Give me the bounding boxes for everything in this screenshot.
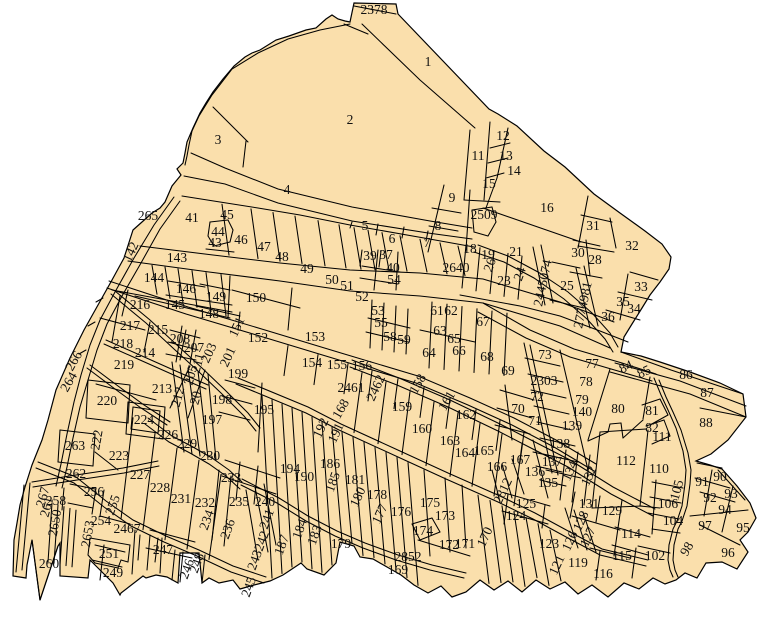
svg-text:39: 39 xyxy=(363,248,377,263)
svg-text:66: 66 xyxy=(452,343,466,358)
svg-text:235: 235 xyxy=(229,494,250,509)
svg-text:223: 223 xyxy=(109,448,130,463)
svg-text:152: 152 xyxy=(248,330,268,345)
svg-text:2640: 2640 xyxy=(443,260,470,275)
svg-text:262: 262 xyxy=(66,466,86,481)
svg-text:2303: 2303 xyxy=(531,373,558,388)
svg-text:199: 199 xyxy=(228,366,249,381)
svg-text:41: 41 xyxy=(185,210,199,225)
svg-text:169: 169 xyxy=(388,562,409,577)
svg-text:87: 87 xyxy=(700,385,714,400)
svg-text:61: 61 xyxy=(430,303,444,318)
svg-text:197: 197 xyxy=(202,412,223,427)
svg-text:92: 92 xyxy=(703,490,717,505)
svg-text:23: 23 xyxy=(497,273,511,288)
svg-text:59: 59 xyxy=(397,332,411,347)
svg-text:265: 265 xyxy=(138,208,159,223)
svg-text:71: 71 xyxy=(528,413,542,428)
svg-text:229: 229 xyxy=(177,436,198,451)
svg-text:195: 195 xyxy=(254,402,275,417)
svg-text:131: 131 xyxy=(579,496,599,511)
svg-text:249: 249 xyxy=(103,565,124,580)
svg-text:215: 215 xyxy=(148,322,169,337)
svg-text:93: 93 xyxy=(724,486,738,501)
svg-text:233: 233 xyxy=(221,470,242,485)
svg-text:217: 217 xyxy=(120,318,141,333)
svg-text:7: 7 xyxy=(424,235,431,250)
svg-text:240: 240 xyxy=(255,494,276,509)
svg-text:46: 46 xyxy=(234,232,248,247)
svg-text:104: 104 xyxy=(663,513,684,528)
svg-text:8: 8 xyxy=(435,218,442,233)
svg-text:214: 214 xyxy=(135,345,156,360)
svg-text:73: 73 xyxy=(538,347,552,362)
svg-text:88: 88 xyxy=(699,415,713,430)
svg-text:155: 155 xyxy=(327,357,348,372)
svg-text:2467: 2467 xyxy=(114,521,141,536)
svg-text:1: 1 xyxy=(425,54,432,69)
svg-text:230: 230 xyxy=(200,448,221,463)
svg-text:95: 95 xyxy=(736,520,750,535)
svg-text:162: 162 xyxy=(456,407,476,422)
svg-text:52: 52 xyxy=(355,289,369,304)
svg-text:116: 116 xyxy=(593,566,613,581)
svg-text:173: 173 xyxy=(435,508,456,523)
svg-text:251: 251 xyxy=(99,546,119,561)
svg-text:123: 123 xyxy=(539,536,560,551)
svg-text:70: 70 xyxy=(511,401,525,416)
svg-text:144: 144 xyxy=(144,270,165,285)
svg-text:218: 218 xyxy=(113,336,134,351)
svg-text:216: 216 xyxy=(130,297,151,312)
svg-text:198: 198 xyxy=(212,392,233,407)
svg-text:224: 224 xyxy=(134,412,155,427)
svg-text:55: 55 xyxy=(374,315,388,330)
svg-text:15: 15 xyxy=(482,176,496,191)
svg-text:34: 34 xyxy=(627,301,641,316)
svg-text:102: 102 xyxy=(645,548,665,563)
svg-text:220: 220 xyxy=(97,393,118,408)
svg-text:2461: 2461 xyxy=(338,380,365,395)
svg-text:227: 227 xyxy=(130,467,151,482)
svg-text:190: 190 xyxy=(294,469,315,484)
svg-text:179: 179 xyxy=(331,536,352,551)
svg-text:5: 5 xyxy=(362,218,369,233)
svg-text:148: 148 xyxy=(199,306,220,321)
svg-text:45: 45 xyxy=(220,207,234,222)
svg-text:213: 213 xyxy=(152,381,173,396)
svg-text:140: 140 xyxy=(572,404,593,419)
svg-text:96: 96 xyxy=(721,545,735,560)
svg-text:164: 164 xyxy=(455,445,476,460)
svg-text:48: 48 xyxy=(275,249,289,264)
svg-text:232: 232 xyxy=(195,495,215,510)
svg-text:81: 81 xyxy=(645,403,659,418)
svg-text:78: 78 xyxy=(579,374,593,389)
svg-text:28: 28 xyxy=(588,252,602,267)
svg-text:171: 171 xyxy=(455,536,475,551)
svg-text:68: 68 xyxy=(480,349,494,364)
svg-text:228: 228 xyxy=(150,480,171,495)
svg-text:146: 146 xyxy=(176,281,197,296)
svg-text:91: 91 xyxy=(695,474,709,489)
svg-text:43: 43 xyxy=(208,235,222,250)
svg-text:50: 50 xyxy=(325,272,339,287)
svg-text:2509: 2509 xyxy=(471,207,498,222)
svg-text:32: 32 xyxy=(625,238,639,253)
svg-text:143: 143 xyxy=(167,250,188,265)
svg-text:159: 159 xyxy=(392,399,413,414)
svg-text:63: 63 xyxy=(433,323,447,338)
svg-text:69: 69 xyxy=(501,363,515,378)
svg-text:153: 153 xyxy=(305,329,326,344)
svg-text:150: 150 xyxy=(246,290,267,305)
svg-text:2: 2 xyxy=(347,112,354,127)
svg-text:86: 86 xyxy=(679,367,693,382)
svg-text:115: 115 xyxy=(612,548,632,563)
svg-text:135: 135 xyxy=(538,475,559,490)
svg-text:174: 174 xyxy=(413,523,434,538)
svg-text:263: 263 xyxy=(65,438,86,453)
svg-text:145: 145 xyxy=(165,297,186,312)
svg-text:4: 4 xyxy=(284,182,291,197)
svg-text:54: 54 xyxy=(387,272,401,287)
svg-text:186: 186 xyxy=(320,456,341,471)
svg-text:97: 97 xyxy=(698,518,712,533)
svg-text:166: 166 xyxy=(487,459,508,474)
svg-text:16: 16 xyxy=(540,200,554,215)
svg-text:178: 178 xyxy=(367,487,388,502)
svg-text:14: 14 xyxy=(507,163,521,178)
svg-text:58: 58 xyxy=(383,329,397,344)
svg-text:176: 176 xyxy=(391,504,412,519)
svg-text:49: 49 xyxy=(300,261,314,276)
svg-text:30: 30 xyxy=(571,245,585,260)
svg-text:33: 33 xyxy=(634,279,648,294)
svg-text:165: 165 xyxy=(474,443,495,458)
svg-text:156: 156 xyxy=(352,358,373,373)
svg-text:64: 64 xyxy=(422,345,436,360)
svg-text:219: 219 xyxy=(114,357,135,372)
svg-text:25: 25 xyxy=(560,278,574,293)
svg-text:112: 112 xyxy=(616,453,636,468)
svg-text:160: 160 xyxy=(412,421,433,436)
svg-text:231: 231 xyxy=(171,491,191,506)
svg-text:111: 111 xyxy=(652,429,671,444)
svg-text:51: 51 xyxy=(340,278,354,293)
svg-text:110: 110 xyxy=(649,461,669,476)
svg-text:139: 139 xyxy=(562,418,583,433)
svg-text:13: 13 xyxy=(499,148,513,163)
svg-text:138: 138 xyxy=(550,436,571,451)
svg-text:256: 256 xyxy=(84,484,105,499)
svg-text:119: 119 xyxy=(568,555,588,570)
svg-text:11: 11 xyxy=(472,148,485,163)
svg-text:72: 72 xyxy=(530,389,544,404)
svg-text:67: 67 xyxy=(476,314,490,329)
svg-text:80: 80 xyxy=(611,401,625,416)
svg-text:62: 62 xyxy=(444,303,458,318)
svg-text:12: 12 xyxy=(496,128,510,143)
svg-text:31: 31 xyxy=(586,218,600,233)
svg-text:124: 124 xyxy=(506,508,527,523)
svg-text:3: 3 xyxy=(215,132,222,147)
svg-text:167: 167 xyxy=(510,452,531,467)
svg-text:129: 129 xyxy=(602,503,623,518)
svg-text:6: 6 xyxy=(389,231,396,246)
svg-text:2378: 2378 xyxy=(361,2,388,17)
svg-text:77: 77 xyxy=(585,356,599,371)
svg-text:114: 114 xyxy=(621,526,641,541)
svg-text:154: 154 xyxy=(302,355,323,370)
svg-text:260: 260 xyxy=(39,556,60,571)
svg-text:94: 94 xyxy=(718,502,732,517)
svg-text:47: 47 xyxy=(257,239,271,254)
svg-text:36: 36 xyxy=(601,309,615,324)
svg-text:21: 21 xyxy=(509,244,523,259)
svg-text:247: 247 xyxy=(153,542,174,557)
svg-text:90: 90 xyxy=(713,469,727,484)
svg-text:149: 149 xyxy=(206,289,227,304)
svg-text:226: 226 xyxy=(158,427,179,442)
svg-text:9: 9 xyxy=(449,190,456,205)
svg-text:18: 18 xyxy=(463,241,477,256)
